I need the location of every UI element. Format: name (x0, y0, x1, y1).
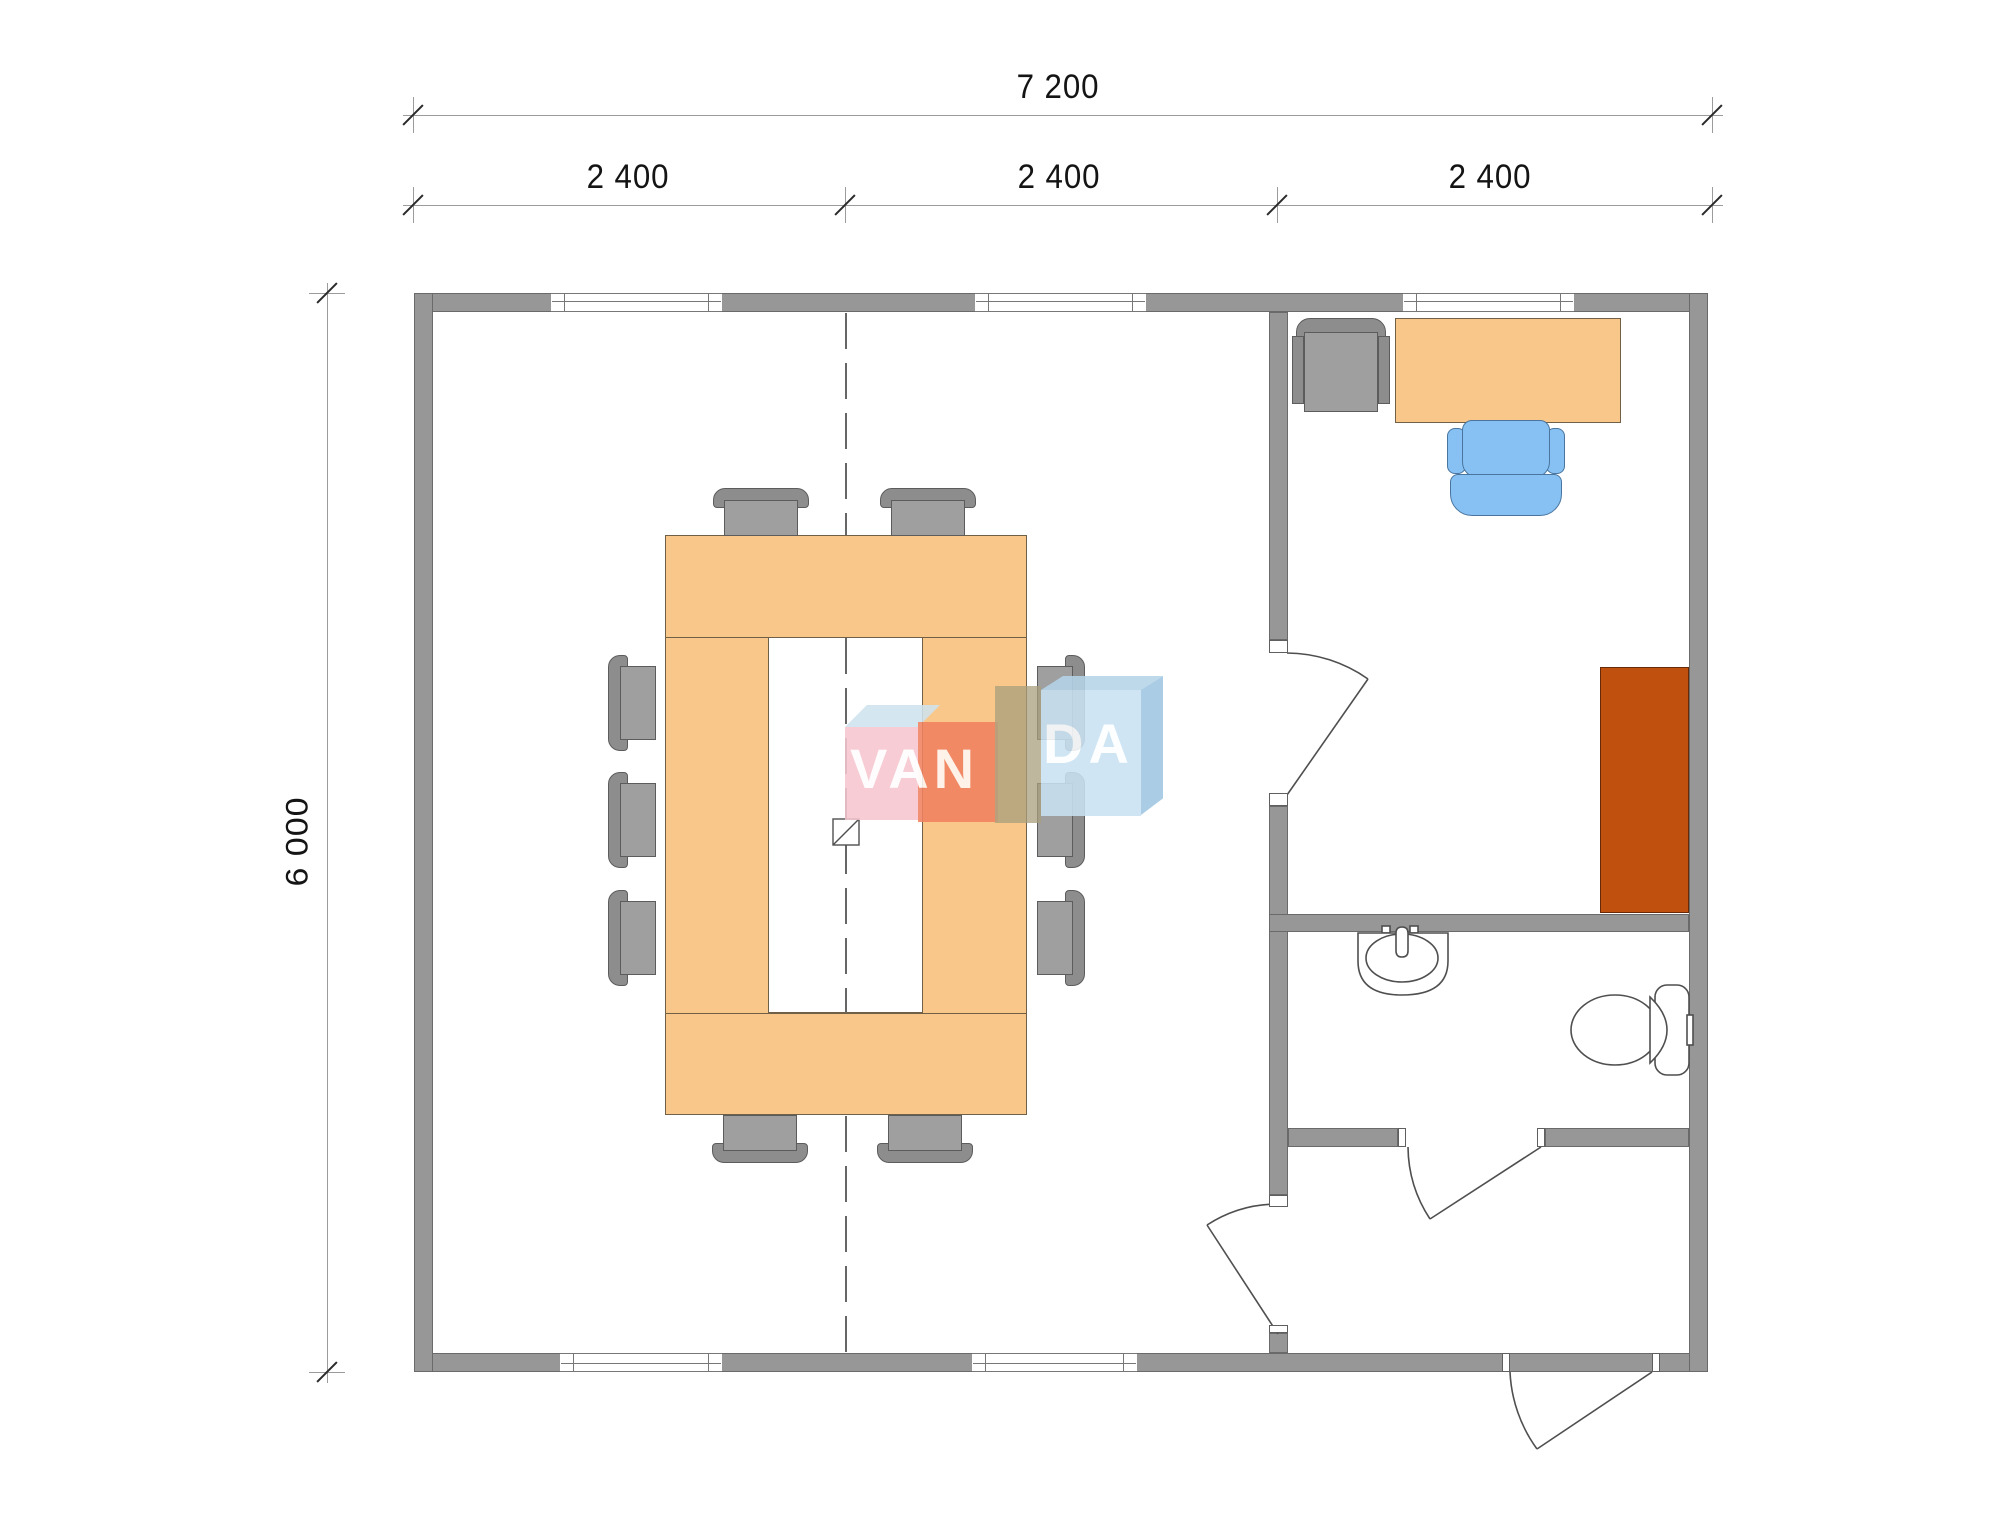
office-desk (1395, 318, 1621, 423)
module-joint-symbol (832, 818, 860, 846)
chair (713, 488, 809, 536)
window-top-office (1403, 293, 1574, 312)
dimension-module-3: 2 400 (1449, 158, 1532, 197)
window-top-1 (551, 293, 722, 312)
chair (608, 890, 666, 986)
entrance-door (1500, 1365, 1665, 1460)
wall-exterior-left (414, 293, 433, 1372)
window-top-2 (975, 293, 1146, 312)
bathroom-door (1395, 1140, 1555, 1240)
office-armchair (1292, 318, 1390, 414)
chair (1027, 655, 1085, 751)
wall-interior-vertical-upper (1269, 312, 1288, 640)
wall-bathroom-hall-right (1545, 1128, 1689, 1147)
door-jamb-cap (1269, 793, 1288, 806)
chair (608, 655, 666, 751)
wall-interior-vertical-middle (1269, 806, 1288, 1195)
chair (608, 772, 666, 868)
chair (880, 488, 976, 536)
door-jamb-cap (1652, 1353, 1660, 1372)
toilet (1555, 975, 1695, 1085)
chair (1027, 772, 1085, 868)
dimension-total-height: 6 000 (280, 796, 316, 886)
window-bottom-2 (972, 1353, 1137, 1372)
door-jamb-cap (1269, 640, 1288, 653)
watermark-panel-bevel (1141, 676, 1163, 815)
table-seam (665, 1013, 1027, 1014)
meeting-room-door (1185, 1195, 1295, 1360)
wall-office-bathroom (1269, 914, 1689, 932)
module-axis-line (845, 1116, 847, 1352)
dimension-module-2: 2 400 (1018, 158, 1101, 197)
dimension-module-1: 2 400 (587, 158, 670, 197)
floor-plan: 7 200 2 400 2 400 2 400 6 000 (0, 0, 2000, 1516)
chair (712, 1115, 808, 1163)
sink (1350, 925, 1456, 1000)
dimension-total-width: 7 200 (1017, 68, 1100, 107)
office-door (1280, 645, 1410, 815)
door-jamb-cap (1537, 1128, 1545, 1147)
dimension-line-total-height (327, 283, 328, 1383)
dimension-line-modules (403, 205, 1723, 206)
office-cabinet (1600, 667, 1689, 913)
window-bottom-1 (560, 1353, 722, 1372)
dimension-line-total-width (403, 115, 1723, 116)
wall-bathroom-hall-left (1288, 1128, 1398, 1147)
office-desk-chair (1447, 420, 1565, 520)
module-axis-line (845, 313, 847, 535)
door-jamb-cap (1398, 1128, 1406, 1147)
chair (1027, 890, 1085, 986)
wall-exterior-right (1689, 293, 1708, 1372)
door-jamb-cap (1269, 1195, 1288, 1207)
door-jamb-cap (1502, 1353, 1510, 1372)
chair (877, 1115, 973, 1163)
door-jamb-cap (1269, 1325, 1288, 1333)
